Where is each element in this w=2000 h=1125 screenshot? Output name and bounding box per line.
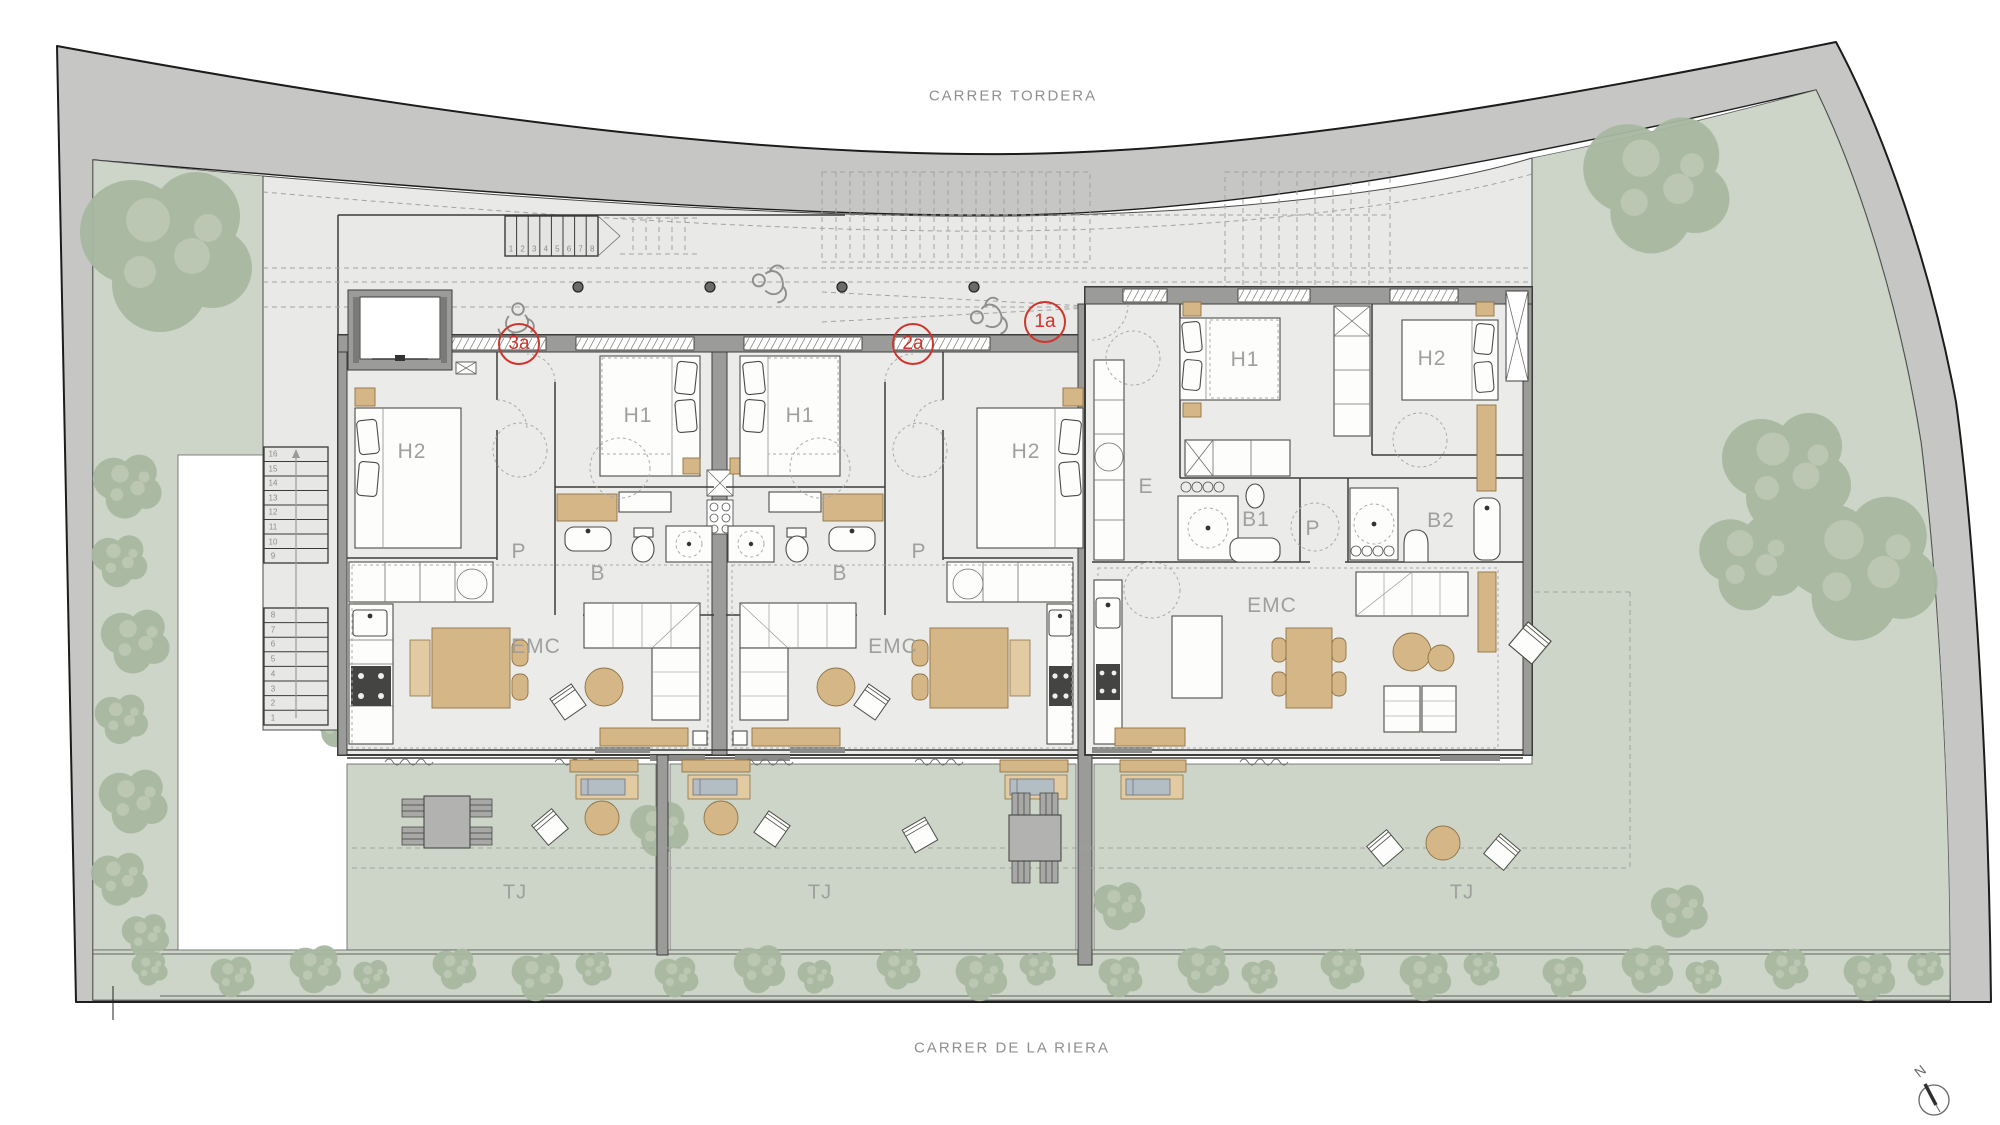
terrace-divider-1 [657,755,668,955]
floor-plan-stage: CARRER TORDERA CARRER DE LA RIERA N H2H1… [0,0,2000,1125]
terrace-bench [1000,760,1068,772]
lounger [688,775,750,799]
elevator [348,290,452,370]
outdoor-pouf [704,801,738,835]
outdoor-pouf [1426,826,1460,860]
floor-plan-drawing [0,0,2000,1125]
terrace-bench [570,760,638,772]
lounger [576,775,638,799]
terrace-bench [682,760,750,772]
terrace-bench [1120,760,1186,772]
building-block-b [1085,287,1532,761]
outdoor-pouf [585,801,619,835]
lounger [1121,775,1183,799]
party-wall-3a-2a [712,352,727,755]
